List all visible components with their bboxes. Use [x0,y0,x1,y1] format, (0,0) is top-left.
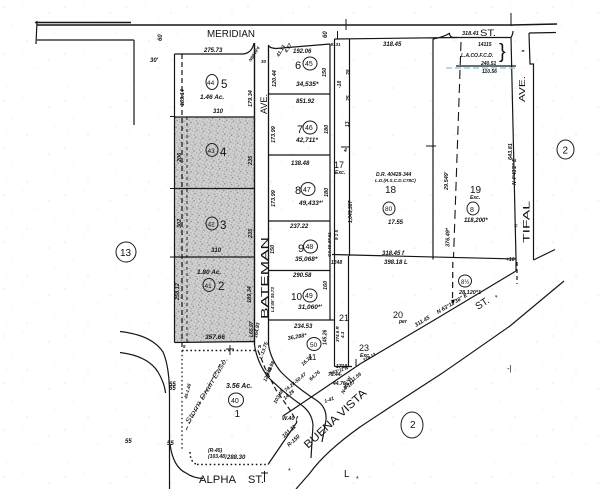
svg-text:118,200*: 118,200* [464,218,488,224]
svg-text:1248: 1248 [331,260,342,266]
svg-text:14115: 14115 [478,42,492,48]
svg-text:1.80 Ac.: 1.80 Ac. [197,269,222,276]
svg-text:L: L [344,469,350,480]
svg-text:5: 5 [221,79,227,91]
svg-text:180: 180 [324,188,330,197]
svg-text:60: 60 [323,31,329,38]
svg-text:4: 4 [343,148,347,154]
svg-text:28: 28 [346,69,352,76]
svg-text:318.45: 318.45 [383,42,402,48]
svg-text:8: 8 [295,185,301,197]
svg-text:120.44: 120.44 [272,70,278,87]
svg-text:1.46 Ac.: 1.46 Ac. [200,94,225,101]
svg-text:180: 180 [324,125,330,134]
svg-text:189.34: 189.34 [247,286,253,303]
svg-text:6: 6 [295,60,301,72]
svg-text:160: 160 [323,281,329,290]
svg-text:30': 30' [150,58,159,64]
svg-text:234.53: 234.53 [293,324,313,330]
svg-text:55: 55 [125,439,132,445]
svg-text:275.73: 275.73 [203,48,223,54]
svg-text:1,049,387: 1,049,387 [348,201,354,223]
svg-text:35,068*: 35,068* [295,256,318,263]
svg-text:C4.43-37.61: C4.43-37.61 [327,232,332,257]
svg-text:2: 2 [410,420,416,431]
svg-text:302: 302 [177,219,183,228]
svg-text:42: 42 [208,222,216,229]
svg-text:=: = [514,224,518,230]
svg-text:(103.48): (103.48) [208,454,227,460]
svg-text:13: 13 [120,248,132,259]
svg-text:110.56: 110.56 [482,69,497,75]
svg-text:21: 21 [339,313,349,323]
svg-text:376.49*: 376.49* [446,227,452,247]
svg-text:31,060*': 31,060*' [298,304,322,311]
svg-text:60: 60 [158,34,164,41]
svg-text:3.56 Ac.: 3.56 Ac. [226,383,252,390]
svg-text:-|: -| [507,364,512,373]
svg-text:189.14: 189.14 [180,89,186,106]
svg-text:*: * [288,468,291,475]
svg-text:W.40 f: W.40 f [282,416,299,422]
svg-text:357.66: 357.66 [205,334,225,341]
svg-text:29.549': 29.549' [444,171,450,191]
svg-text:-18: -18 [337,81,343,88]
svg-text:45: 45 [305,61,313,68]
svg-text:L.A.CO.F.C.D.: L.A.CO.F.C.D. [461,53,493,59]
svg-text:398.18 L: 398.18 L [384,260,408,266]
svg-text:150: 150 [270,245,276,254]
svg-text:N 4°43'2" E: N 4°43'2" E [512,158,518,185]
svg-text:AVE.: AVE. [517,76,527,102]
svg-text:9131: 9131 [331,42,342,47]
svg-text:173.99: 173.99 [271,125,277,143]
svg-text:145.26: 145.26 [323,329,329,345]
svg-text:43: 43 [208,148,216,155]
svg-text:MERIDIAN: MERIDIAN [207,28,255,40]
svg-text:237.22: 237.22 [289,224,309,230]
svg-text:8: 8 [470,207,474,214]
svg-text:7: 7 [297,124,303,136]
svg-text:138.48: 138.48 [291,161,310,167]
svg-text:48: 48 [306,244,314,251]
svg-text:55: 55 [169,386,176,392]
svg-text:TIFAL: TIFAL [522,201,533,243]
svg-text:17.55: 17.55 [388,220,404,226]
svg-text:49,433*': 49,433*' [298,200,323,207]
svg-text:4.3: 4.3 [340,331,345,339]
svg-text:318.41: 318.41 [462,31,479,37]
svg-text:310: 310 [211,248,222,254]
svg-text:AVE.: AVE. [259,94,269,114]
svg-text:9: 9 [298,243,304,255]
svg-text:*: * [356,476,359,483]
svg-text:4: 4 [220,147,227,159]
svg-text:Exc.: Exc. [335,170,345,176]
svg-text:}: } [499,41,506,63]
svg-text:per: per [398,319,408,325]
svg-text:235: 235 [248,155,254,166]
svg-text:34,535*: 34,535* [296,81,319,88]
svg-text:310: 310 [213,109,224,115]
svg-text:L.D.(R.S.C.D.C78C): L.D.(R.S.C.D.C78C) [375,178,416,183]
svg-text:40: 40 [231,398,239,405]
svg-text:55: 55 [167,441,174,447]
svg-text:290.58: 290.58 [292,273,312,279]
svg-text:9 1 5: 9 1 5 [334,229,339,240]
svg-text:ST.: ST. [248,474,264,486]
svg-text:3: 3 [220,220,226,232]
svg-text:150: 150 [322,68,328,77]
svg-text:288.30: 288.30 [226,455,246,461]
svg-text:1: 1 [235,409,241,420]
svg-text:10: 10 [291,292,303,303]
svg-text:851.92: 851.92 [296,99,315,105]
svg-text:47: 47 [303,187,311,194]
svg-text:179.34: 179.34 [248,90,254,107]
svg-text:+10: +10 [506,257,515,263]
svg-text:L4'45' 35.73: L4'45' 35.73 [270,287,275,312]
svg-text:17: 17 [334,160,344,170]
svg-text:18: 18 [385,185,397,196]
svg-text:ALPHA: ALPHA [199,474,237,486]
svg-text:41: 41 [205,283,213,290]
svg-text:2: 2 [218,281,224,293]
svg-text:206: 206 [177,152,183,163]
svg-text:173.99: 173.99 [271,189,277,207]
svg-text:8½: 8½ [461,279,469,286]
svg-text:46: 46 [305,125,313,132]
svg-text:ST.: ST. [480,28,496,38]
svg-text:2: 2 [563,146,569,157]
svg-text:25: 25 [346,95,352,102]
svg-text:Exc.: Exc. [470,195,480,201]
svg-text:44: 44 [207,80,215,87]
svg-text:235: 235 [248,228,254,239]
svg-text:50: 50 [310,342,318,349]
svg-text:240.51: 240.51 [480,61,497,67]
svg-text:192.06: 192.06 [293,49,312,55]
svg-text:49: 49 [305,293,313,300]
svg-text:258.12: 258.12 [175,283,181,301]
svg-text:13: 13 [345,121,351,127]
svg-text:42,711*: 42,711* [295,137,318,144]
svg-text:30: 30 [261,59,267,64]
svg-text:318.45 f: 318.45 f [382,251,405,257]
svg-text:80: 80 [385,206,393,213]
svg-text:23: 23 [359,343,369,353]
svg-text:643.81: 643.81 [508,143,514,160]
